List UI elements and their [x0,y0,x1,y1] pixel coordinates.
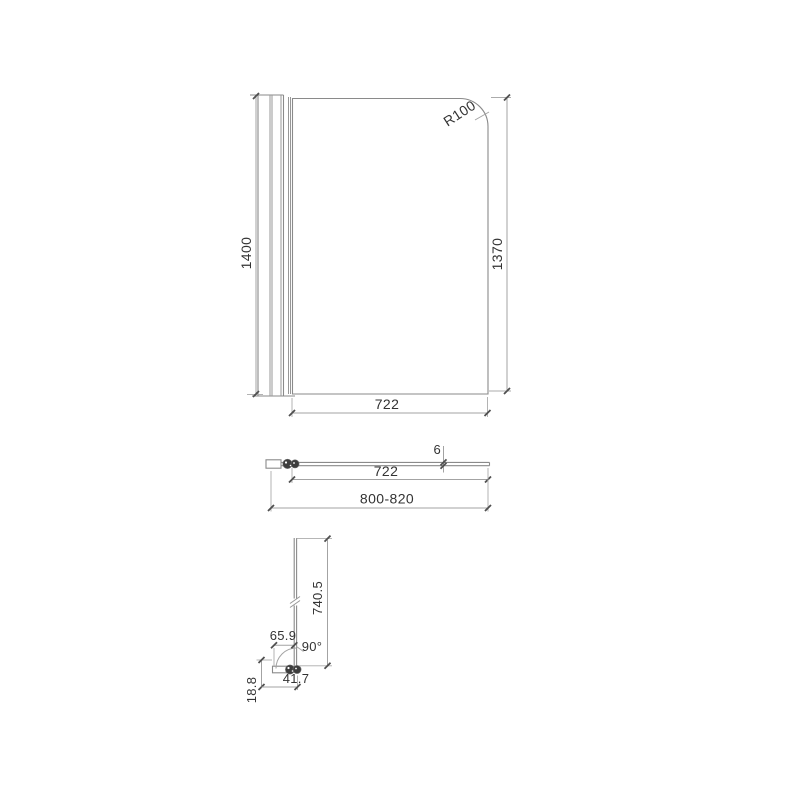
bracket-height-label: 18.8 [244,677,259,704]
dim-wall-offset: 65.9 [270,628,298,666]
glass-thickness-label: 6 [433,442,441,457]
plan-view: 6 722 800-820 [266,442,491,512]
dim-bracket-height: 18.8 [244,657,272,703]
dim-overall-height: 1400 [238,93,263,397]
bath-screen-drawing: R100 1400 1370 722 [0,0,800,800]
overall-height-label: 1400 [238,237,254,270]
side-height-label: 740.5 [310,581,325,615]
wall-offset-label: 65.9 [270,628,297,643]
side-view: 740.5 90° 65.9 18.8 4 [244,536,332,704]
glass-width-front-label: 722 [375,396,400,412]
bracket-length-label: 41.7 [283,671,310,686]
technical-drawing-canvas: R100 1400 1370 722 [0,0,800,800]
wall-bracket-plan [266,460,281,468]
dim-glass-thickness: 6 [433,442,446,473]
dim-glass-width-front: 722 [289,396,491,417]
dim-bracket-length: 41.7 [262,671,310,690]
wall-profile-front [250,95,295,396]
front-view: R100 1400 1370 722 [238,93,511,417]
pivot-angle-label: 90° [302,639,323,654]
glass-width-plan-label: 722 [374,463,399,479]
glass-panel-outline [293,99,489,395]
overall-width-label: 800-820 [360,491,414,507]
dim-corner-radius: R100 [440,97,489,130]
corner-radius-label: R100 [440,97,478,130]
dim-glass-height-front: 1370 [489,95,511,395]
glass-height-label: 1370 [489,238,505,271]
dim-pivot-angle: 90° [276,639,322,669]
hinge-plan [283,459,299,468]
